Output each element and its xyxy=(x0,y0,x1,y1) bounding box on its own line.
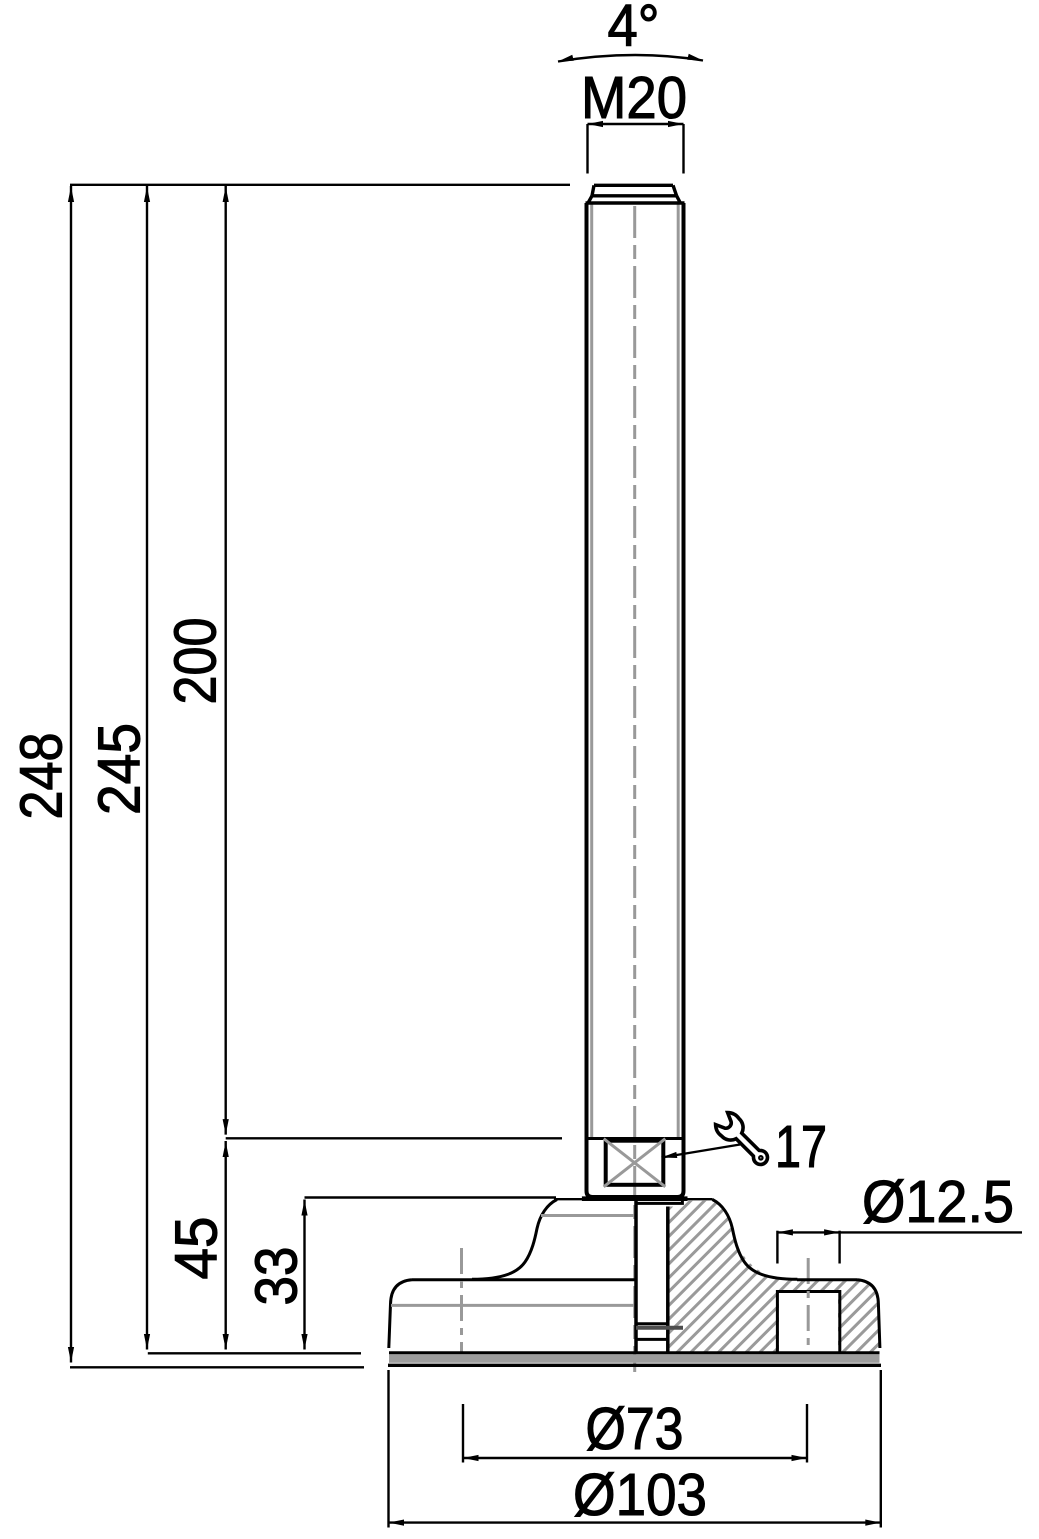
svg-text:4°: 4° xyxy=(608,0,660,59)
svg-text:200: 200 xyxy=(163,618,229,705)
svg-text:Ø73: Ø73 xyxy=(586,1396,684,1462)
svg-text:248: 248 xyxy=(9,733,75,820)
svg-text:Ø103: Ø103 xyxy=(573,1462,707,1528)
svg-text:Ø12.5: Ø12.5 xyxy=(862,1169,1014,1235)
svg-text:17: 17 xyxy=(775,1114,827,1180)
svg-text:245: 245 xyxy=(87,723,153,815)
svg-text:45: 45 xyxy=(164,1217,230,1280)
svg-text:M20: M20 xyxy=(581,65,687,131)
svg-text:33: 33 xyxy=(244,1247,310,1306)
